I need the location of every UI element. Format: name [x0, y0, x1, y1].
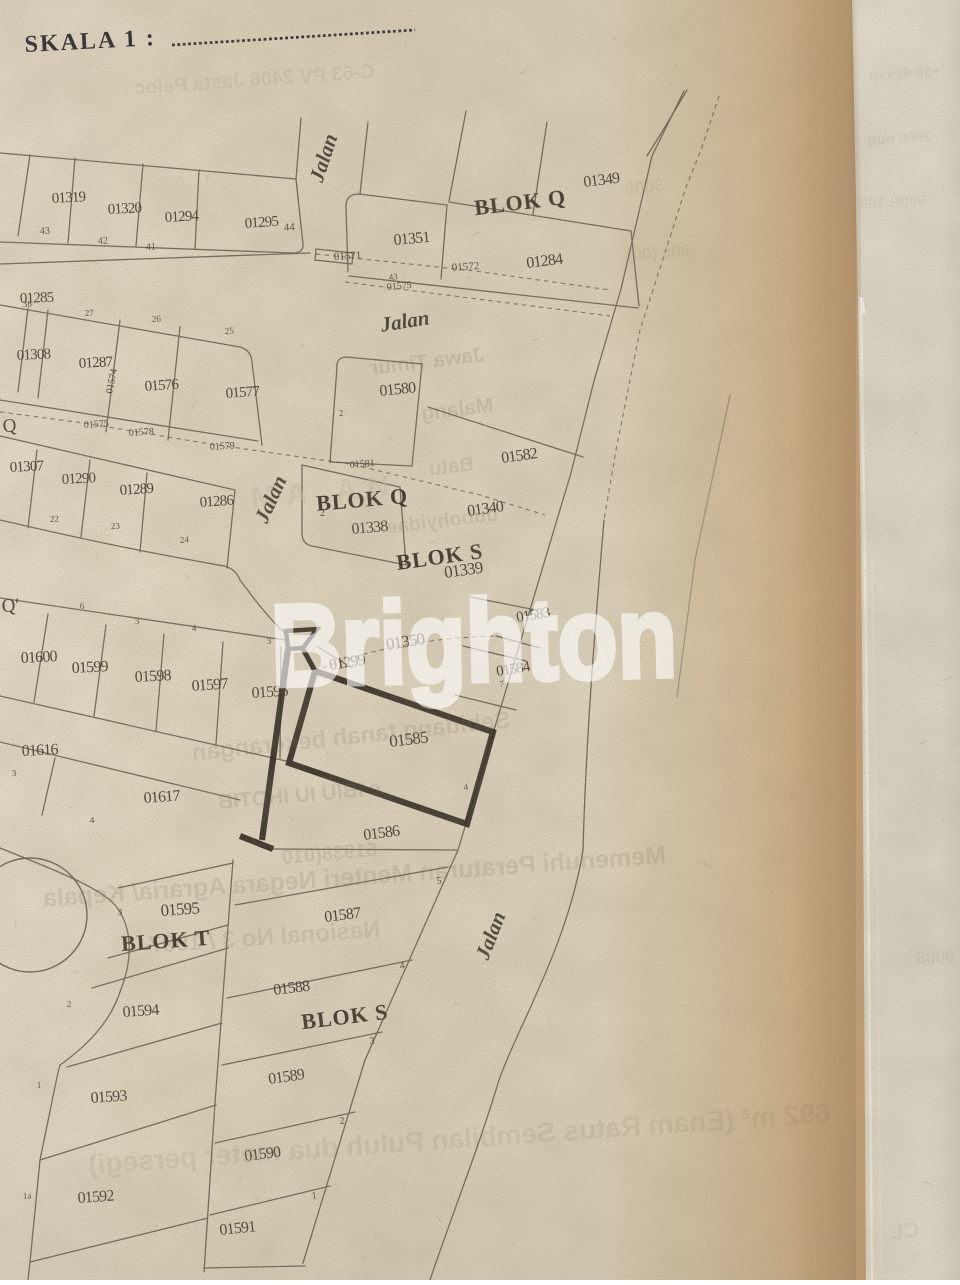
svg-text:Brighton: Brighton: [269, 571, 678, 711]
